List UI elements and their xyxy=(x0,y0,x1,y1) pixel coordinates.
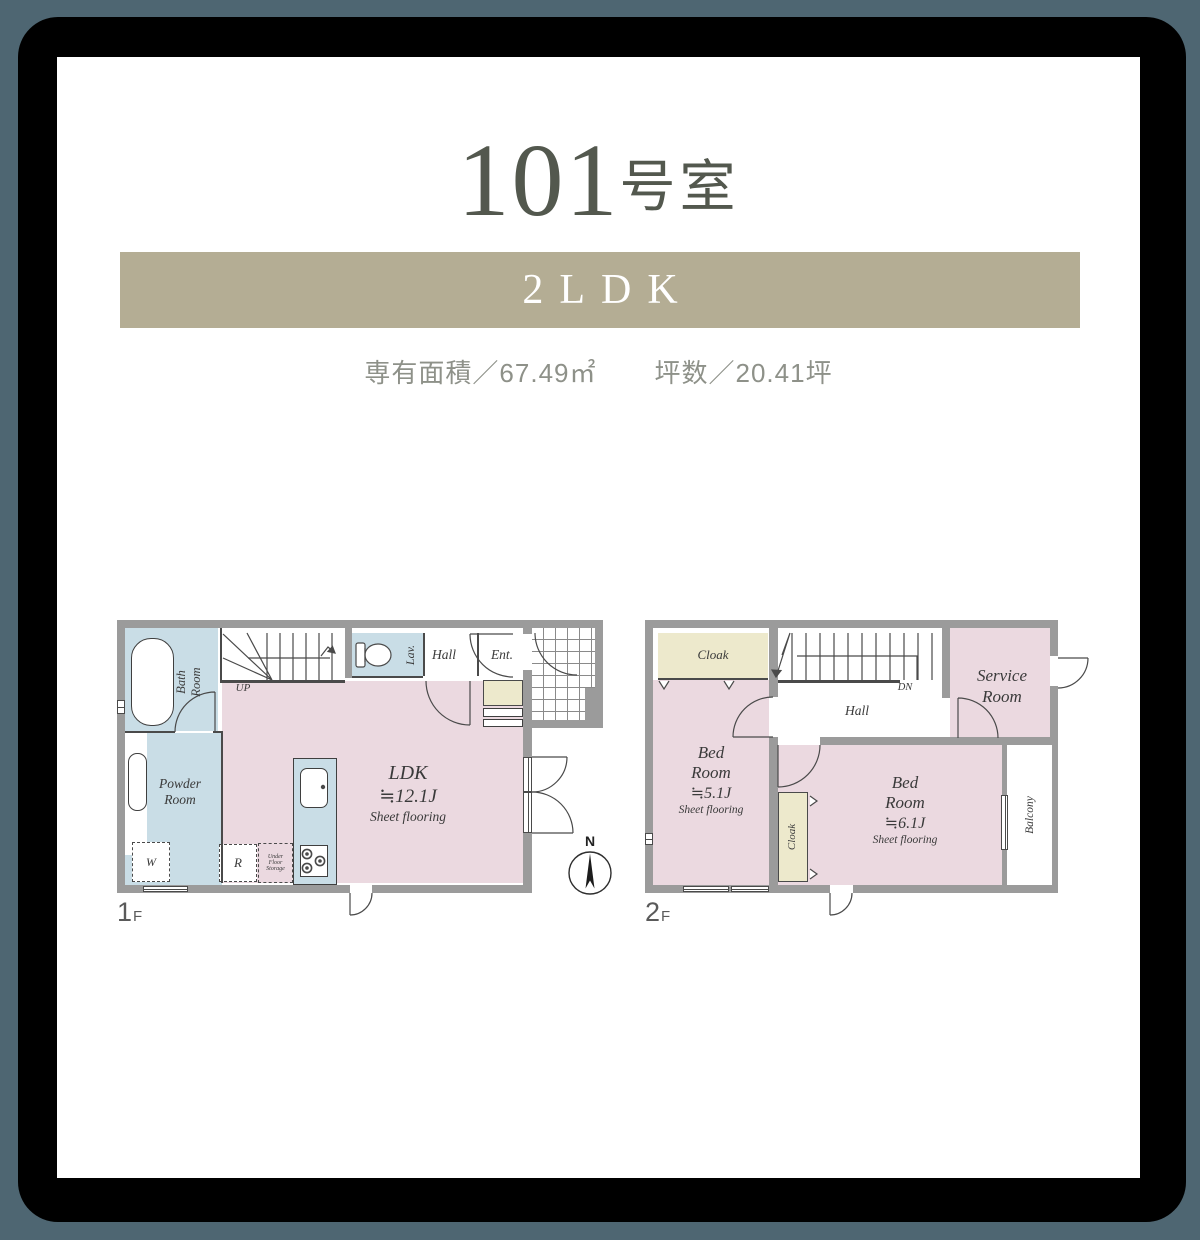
balcony-window xyxy=(1001,795,1008,850)
under-floor-storage: Under Floor Storage xyxy=(258,843,293,883)
ufs-line3: Storage xyxy=(266,866,285,872)
door-gap xyxy=(830,885,853,893)
room-card: 101号室 2LDK 専有面積／67.49㎡ 坪数／20.41坪 xyxy=(57,57,1140,1178)
ldk-window-lower xyxy=(523,792,532,833)
service-room-label: Service Room xyxy=(942,662,1062,712)
bed2-line1: Bed xyxy=(892,773,918,794)
ldk-size: ≒12.1J xyxy=(379,785,437,808)
page-title: 101号室 xyxy=(57,129,1140,233)
bed2-line2: Room xyxy=(885,793,925,814)
bottom-wall-window xyxy=(143,886,188,892)
wall-line xyxy=(658,678,768,680)
powder-line2: Room xyxy=(164,792,196,808)
wall-segment xyxy=(532,720,603,728)
entrance-step xyxy=(483,708,523,717)
bathroom-label: Bath Room xyxy=(161,642,217,722)
wall-segment xyxy=(523,833,532,893)
kitchen-sink xyxy=(300,768,328,808)
wall-line xyxy=(477,633,479,676)
wall-line xyxy=(125,731,175,733)
fridge-label: R xyxy=(234,855,242,871)
dn-label: DN xyxy=(891,682,919,695)
wall-segment xyxy=(345,628,352,678)
door-gap xyxy=(778,737,820,745)
wall-line xyxy=(221,733,223,883)
lavatory-label: Lav. xyxy=(396,635,424,675)
compass-icon xyxy=(569,852,611,894)
floorplan-1f: W R Under Floor Storage xyxy=(117,620,617,935)
ufs-label: Under Floor Storage xyxy=(266,854,285,873)
door-gap xyxy=(350,885,372,893)
stairs-1f xyxy=(223,633,335,680)
wall-line xyxy=(220,628,222,681)
wall-segment xyxy=(523,728,532,757)
bedroom1-label: Bed Room ≒5.1J Sheet flooring xyxy=(651,738,771,822)
tsubo-text: 坪数／20.41坪 xyxy=(655,353,833,390)
wall-segment xyxy=(595,628,603,720)
bath-line1: Bath xyxy=(174,670,189,694)
wall-line xyxy=(778,680,900,683)
room-number: 101 xyxy=(458,123,620,238)
floor2-suffix: F xyxy=(661,908,670,925)
wall-segment xyxy=(117,620,125,893)
layout-type-label: 2LDK xyxy=(506,266,693,314)
bottom-wall-window xyxy=(683,886,729,892)
ldk-name: LDK xyxy=(389,761,428,785)
wall-segment xyxy=(523,628,532,634)
stove xyxy=(300,845,328,877)
area-info-row: 専有面積／67.49㎡ 坪数／20.41坪 xyxy=(57,353,1140,390)
hall-label-1f: Hall xyxy=(424,646,464,664)
wall-segment xyxy=(1052,745,1058,893)
wall-segment xyxy=(645,620,1058,628)
room-number-suffix: 号室 xyxy=(620,157,740,219)
washer-label: W xyxy=(146,855,156,870)
layout-type-band: 2LDK xyxy=(120,252,1080,328)
entrance-label: Ent. xyxy=(480,646,524,664)
fridge-space: R xyxy=(219,844,257,882)
bath-line2: Room xyxy=(189,667,204,696)
floorplan-2f: Cloak DN Hall Service Room Bed Room ≒5.1… xyxy=(645,620,1090,935)
cloak-mid-label: Cloak xyxy=(779,807,807,867)
floor1-label: 1F xyxy=(117,897,142,928)
bed1-line1: Bed xyxy=(698,743,724,764)
stairs-2f xyxy=(772,633,932,680)
bed1-line2: Room xyxy=(691,763,731,784)
wall-segment xyxy=(523,670,532,728)
page-background: 101号室 2LDK 専有面積／67.49㎡ 坪数／20.41坪 xyxy=(0,0,1200,1240)
powder-line1: Powder xyxy=(159,776,201,792)
floor2-label: 2F xyxy=(645,897,670,928)
bedroom2-label: Bed Room ≒6.1J Sheet flooring xyxy=(830,768,980,852)
ldk-flooring: Sheet flooring xyxy=(370,809,446,825)
powder-room-label: Powder Room xyxy=(140,772,220,812)
exclusive-area-text: 専有面積／67.49㎡ xyxy=(364,353,596,390)
floor1-number: 1 xyxy=(117,897,132,927)
wall-segment xyxy=(585,688,595,720)
up-label: UP xyxy=(229,682,257,696)
washer-space: W xyxy=(132,842,170,882)
bed1-size: ≒5.1J xyxy=(691,784,732,804)
bottom-wall-window xyxy=(731,886,769,892)
left-wall-window xyxy=(645,833,653,845)
north-label: N xyxy=(579,833,601,849)
ldk-label: LDK ≒12.1J Sheet flooring xyxy=(328,760,488,826)
bed2-size: ≒6.1J xyxy=(885,814,926,834)
hall-label-2f: Hall xyxy=(817,702,897,720)
ldk-window-upper xyxy=(523,757,532,792)
service-line2: Room xyxy=(982,687,1022,708)
bed1-flooring: Sheet flooring xyxy=(679,803,744,817)
wall-line xyxy=(352,676,423,678)
balcony-label: Balcony xyxy=(1016,780,1044,850)
entrance-step2 xyxy=(483,719,523,727)
wall-segment xyxy=(117,620,603,628)
bed2-flooring: Sheet flooring xyxy=(873,833,938,847)
shoe-cabinet xyxy=(483,680,523,706)
floor2-number: 2 xyxy=(645,897,660,927)
left-wall-window xyxy=(117,700,125,714)
floor1-suffix: F xyxy=(133,908,142,925)
cloak-top-label: Cloak xyxy=(673,646,753,664)
service-line1: Service xyxy=(977,666,1027,687)
door-gap xyxy=(769,697,778,737)
